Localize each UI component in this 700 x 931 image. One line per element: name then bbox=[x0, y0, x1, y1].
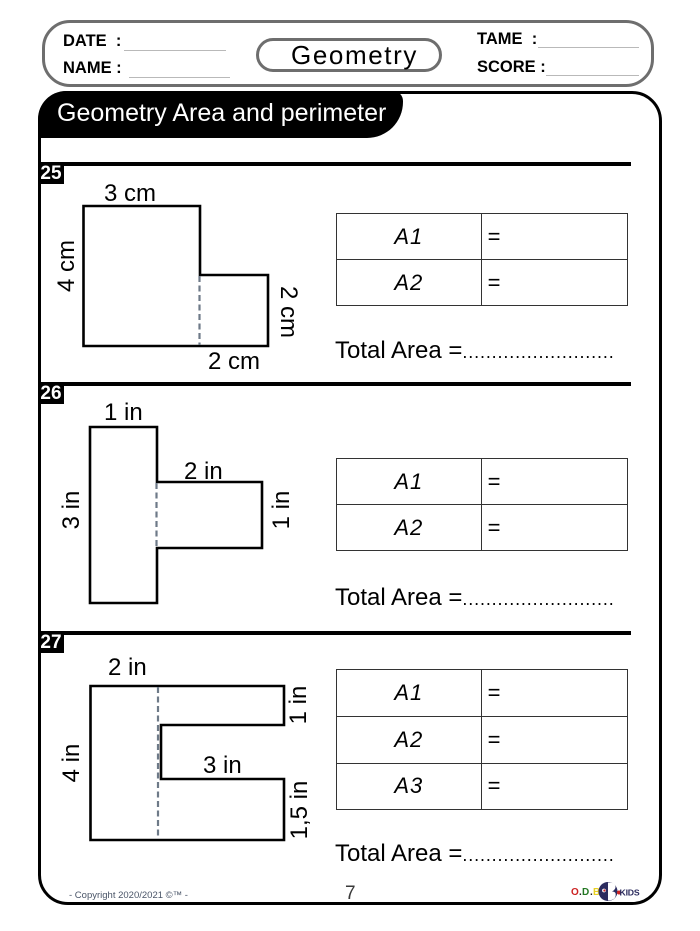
svg-text:D: D bbox=[582, 887, 589, 898]
svg-text:KIDS: KIDS bbox=[620, 888, 640, 898]
svg-text:O: O bbox=[571, 887, 579, 898]
